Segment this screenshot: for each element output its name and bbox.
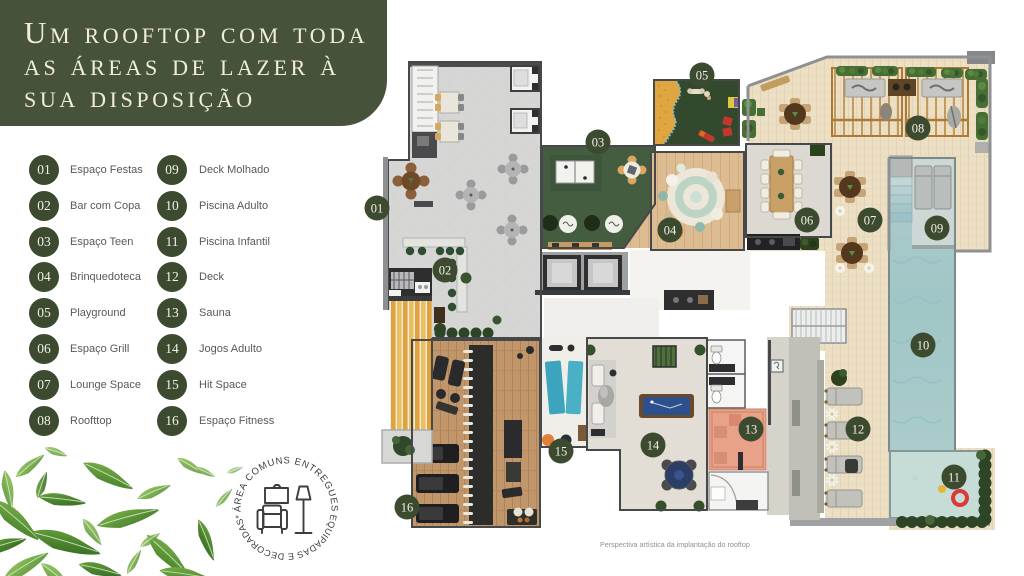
- svg-text:14: 14: [647, 439, 660, 453]
- svg-text:10: 10: [917, 339, 930, 353]
- svg-text:01: 01: [371, 202, 384, 216]
- svg-text:13: 13: [745, 423, 758, 437]
- svg-text:08: 08: [912, 122, 925, 136]
- svg-text:04: 04: [664, 224, 677, 238]
- svg-text:02: 02: [439, 264, 452, 278]
- svg-text:11: 11: [948, 471, 960, 485]
- svg-text:16: 16: [401, 501, 414, 515]
- svg-text:07: 07: [864, 214, 877, 228]
- svg-text:09: 09: [931, 222, 944, 236]
- svg-text:06: 06: [801, 214, 814, 228]
- svg-text:12: 12: [852, 423, 865, 437]
- svg-text:03: 03: [592, 136, 605, 150]
- svg-text:15: 15: [555, 445, 568, 459]
- svg-text:EQUIPADAS E DECORADAS*: EQUIPADAS E DECORADAS*: [233, 514, 338, 562]
- svg-text:05: 05: [696, 69, 709, 83]
